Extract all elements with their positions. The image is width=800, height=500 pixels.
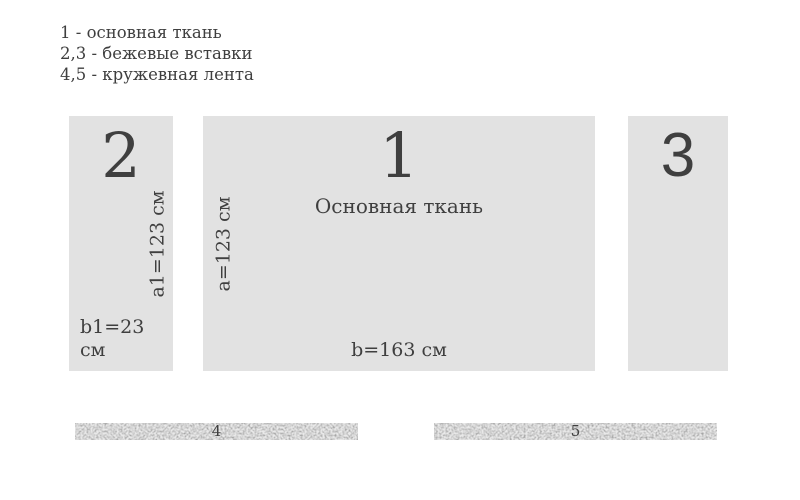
piece-2-beige-insert-left: 2 a1=123 см b1=23 см — [69, 116, 173, 371]
piece-2-number: 2 — [69, 125, 173, 187]
piece-1-width-label: b=163 см — [203, 339, 595, 362]
ribbon-5-number: 5 — [434, 423, 717, 440]
fabric-cutting-diagram: 1 - основная ткань 2,3 - бежевые вставки… — [0, 0, 800, 500]
piece-3-beige-insert-right: 3 — [628, 116, 728, 371]
piece-3-number: 3 — [628, 125, 728, 187]
legend-line-main-fabric: 1 - основная ткань — [60, 22, 254, 43]
piece-2-height-label: a1=123 см — [149, 190, 168, 297]
piece-1-title: Основная ткань — [203, 195, 595, 217]
ribbon-4-number: 4 — [75, 423, 358, 440]
legend: 1 - основная ткань 2,3 - бежевые вставки… — [60, 22, 254, 85]
piece-1-number: 1 — [203, 125, 595, 187]
piece-1-height-label: a=123 см — [215, 196, 234, 291]
piece-2-width-label: b1=23 см — [80, 316, 173, 362]
legend-line-lace-ribbon: 4,5 - кружевная лента — [60, 64, 254, 85]
legend-line-beige-inserts: 2,3 - бежевые вставки — [60, 43, 254, 64]
ribbon-4-lace-strip: 4 — [75, 423, 358, 440]
ribbon-5-lace-strip: 5 — [434, 423, 717, 440]
piece-1-main-fabric: 1 Основная ткань a=123 см b=163 см — [203, 116, 595, 371]
